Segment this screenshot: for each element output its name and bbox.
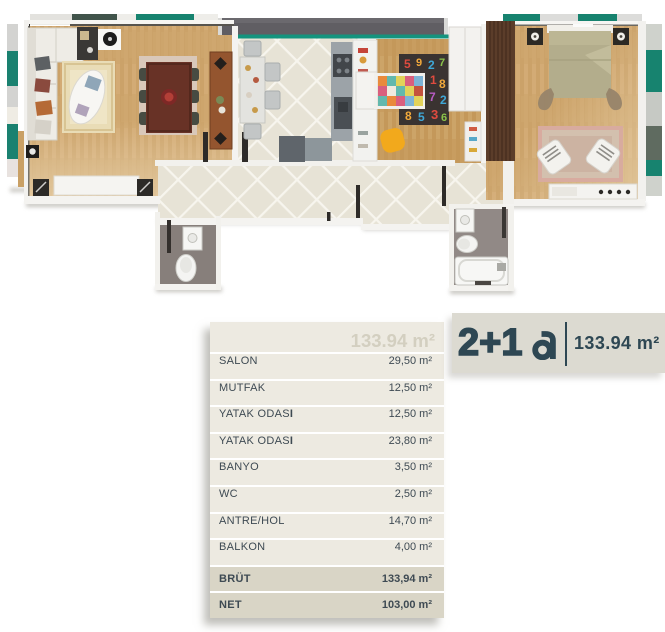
svg-text:6: 6 bbox=[441, 112, 447, 124]
svg-text:5: 5 bbox=[418, 110, 425, 124]
svg-text:1: 1 bbox=[430, 73, 437, 87]
svg-text:3: 3 bbox=[431, 107, 438, 122]
svg-text:9: 9 bbox=[416, 57, 422, 69]
svg-text:7: 7 bbox=[439, 57, 445, 69]
svg-text:2: 2 bbox=[428, 58, 435, 72]
svg-text:7: 7 bbox=[429, 90, 436, 104]
svg-text:8: 8 bbox=[405, 109, 412, 123]
svg-text:2: 2 bbox=[440, 93, 447, 107]
svg-text:5: 5 bbox=[404, 57, 411, 71]
svg-text:8: 8 bbox=[439, 77, 446, 91]
